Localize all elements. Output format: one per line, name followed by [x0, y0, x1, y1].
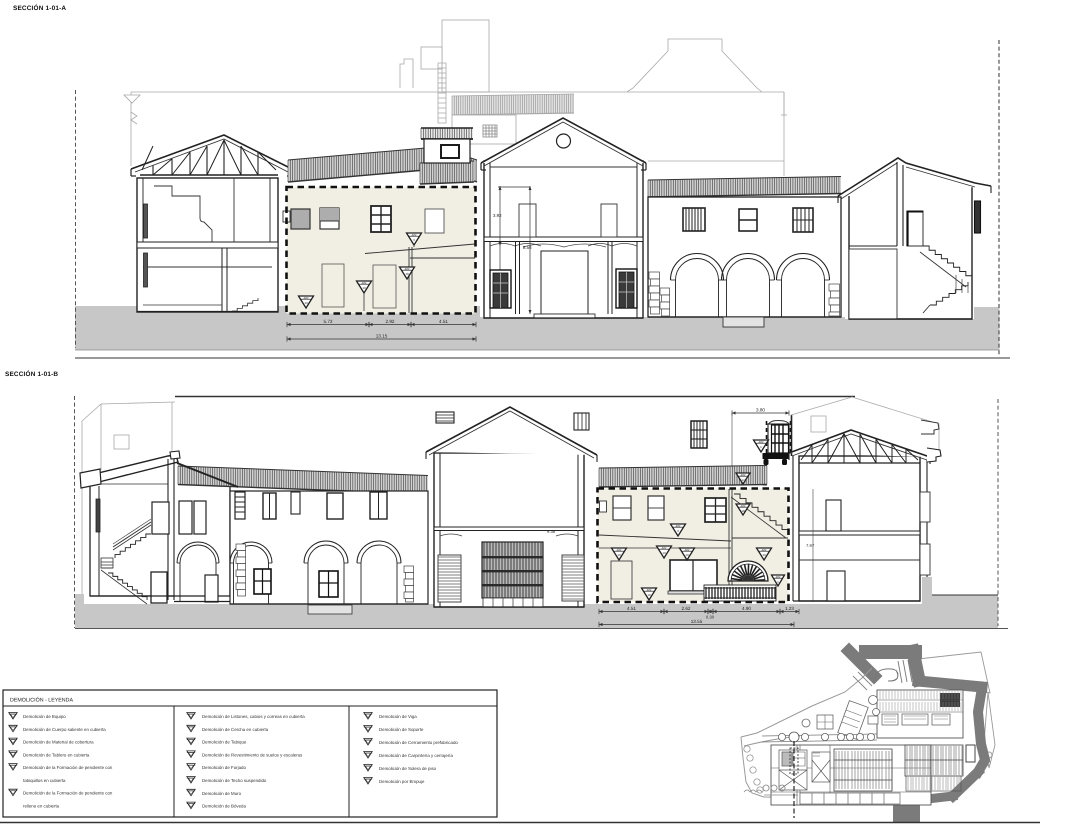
svg-text:19: 19 [662, 551, 666, 555]
svg-text:2.62: 2.62 [682, 606, 691, 611]
svg-text:DEMOLICIÓN - LEYENDA: DEMOLICIÓN - LEYENDA [10, 697, 73, 704]
svg-text:Demolición de Cercha en cubier: Demolición de Cercha en cubierta [202, 727, 269, 732]
svg-text:Demolición de Forjado: Demolición de Forjado [202, 765, 246, 770]
svg-text:A02: A02 [647, 588, 652, 592]
svg-text:Demolición de Revestimiento de: Demolición de Revestimiento de suelos y … [202, 752, 303, 757]
svg-text:A02: A02 [741, 504, 746, 508]
svg-text:Demolición de Bóveda: Demolición de Bóveda [202, 804, 246, 809]
svg-text:4.51: 4.51 [627, 606, 636, 611]
svg-text:0.30: 0.30 [706, 615, 715, 620]
svg-text:19: 19 [304, 301, 308, 305]
svg-text:SECCIÓN 1-01-A: SECCIÓN 1-01-A [13, 4, 66, 12]
svg-text:17: 17 [741, 478, 745, 482]
svg-text:13.15: 13.15 [376, 333, 388, 338]
svg-text:Demolición de Tabique: Demolición de Tabique [202, 740, 247, 745]
svg-text:Demolición de la Formación: Demolición de la Formación de pendiente … [23, 765, 113, 770]
svg-text:Demolición por Empuje: Demolición por Empuje [379, 779, 425, 784]
svg-text:18: 18 [741, 509, 745, 513]
svg-text:A02: A02 [762, 548, 767, 552]
svg-text:A02: A02 [617, 548, 622, 552]
svg-text:8.56: 8.56 [523, 245, 532, 250]
svg-text:Demolición de Carpintería y ce: Demolición de Carpintería y cerrajería [379, 753, 453, 758]
svg-text:Demolición de Listones, cabios: Demolición de Listones, cabios y correas… [202, 714, 305, 719]
svg-text:A02: A02 [741, 473, 746, 477]
svg-text:9.36: 9.36 [547, 529, 556, 534]
svg-text:3.80: 3.80 [756, 407, 765, 412]
svg-text:A02: A02 [662, 546, 667, 550]
svg-text:SECCIÓN 1-01-B: SECCIÓN 1-01-B [5, 370, 58, 378]
svg-text:19: 19 [685, 553, 689, 557]
svg-text:13.55: 13.55 [691, 619, 703, 624]
svg-text:7.97: 7.97 [806, 543, 815, 548]
svg-text:A02: A02 [685, 548, 690, 552]
svg-text:A02: A02 [676, 524, 681, 528]
svg-text:1.23: 1.23 [785, 606, 794, 611]
svg-text:4.51: 4.51 [439, 319, 448, 324]
svg-text:Demolición de la Formación: Demolición de la Formación de pendiente … [23, 791, 113, 796]
svg-text:19: 19 [762, 553, 766, 557]
svg-text:Demolición de Solera de piso: Demolición de Solera de piso [379, 766, 437, 771]
svg-text:Demolición de Techo suspendido: Demolición de Techo suspendido [202, 778, 267, 783]
svg-text:19: 19 [647, 593, 651, 597]
svg-text:5.73: 5.73 [324, 319, 333, 324]
svg-text:relleno en cubierta: relleno en cubierta [23, 804, 60, 809]
svg-text:Demolición de Material de cobe: Demolición de Material de cobertura [23, 740, 94, 745]
svg-text:A02: A02 [776, 575, 781, 579]
svg-text:Demolición de Soporte: Demolición de Soporte [379, 727, 424, 732]
svg-text:4.90: 4.90 [742, 606, 751, 611]
svg-text:18: 18 [405, 272, 409, 276]
svg-text:A02: A02 [412, 233, 417, 237]
svg-text:Demolición de Cerramiento pref: Demolición de Cerramiento prefabricado [379, 740, 458, 745]
svg-text:A02: A02 [304, 296, 309, 300]
svg-text:Demolición de Cuerpo saliente: Demolición de Cuerpo saliente en cubiert… [23, 727, 106, 732]
svg-text:2.92: 2.92 [386, 319, 395, 324]
svg-text:Demolición de Muro: Demolición de Muro [202, 791, 242, 796]
svg-text:A02: A02 [362, 281, 367, 285]
svg-text:19: 19 [362, 286, 366, 290]
svg-text:tabiquillos en cubierta: tabiquillos en cubierta [23, 778, 66, 783]
svg-text:3.92: 3.92 [493, 213, 502, 218]
svg-text:Demolición de Tablero en cubie: Demolición de Tablero en cubierta [23, 752, 90, 757]
svg-text:Demolición de Equipo: Demolición de Equipo [23, 714, 66, 719]
svg-text:A02: A02 [405, 267, 410, 271]
svg-text:19: 19 [617, 553, 621, 557]
svg-text:Demolición de Viga: Demolición de Viga [379, 714, 417, 719]
svg-text:A02: A02 [759, 440, 764, 444]
